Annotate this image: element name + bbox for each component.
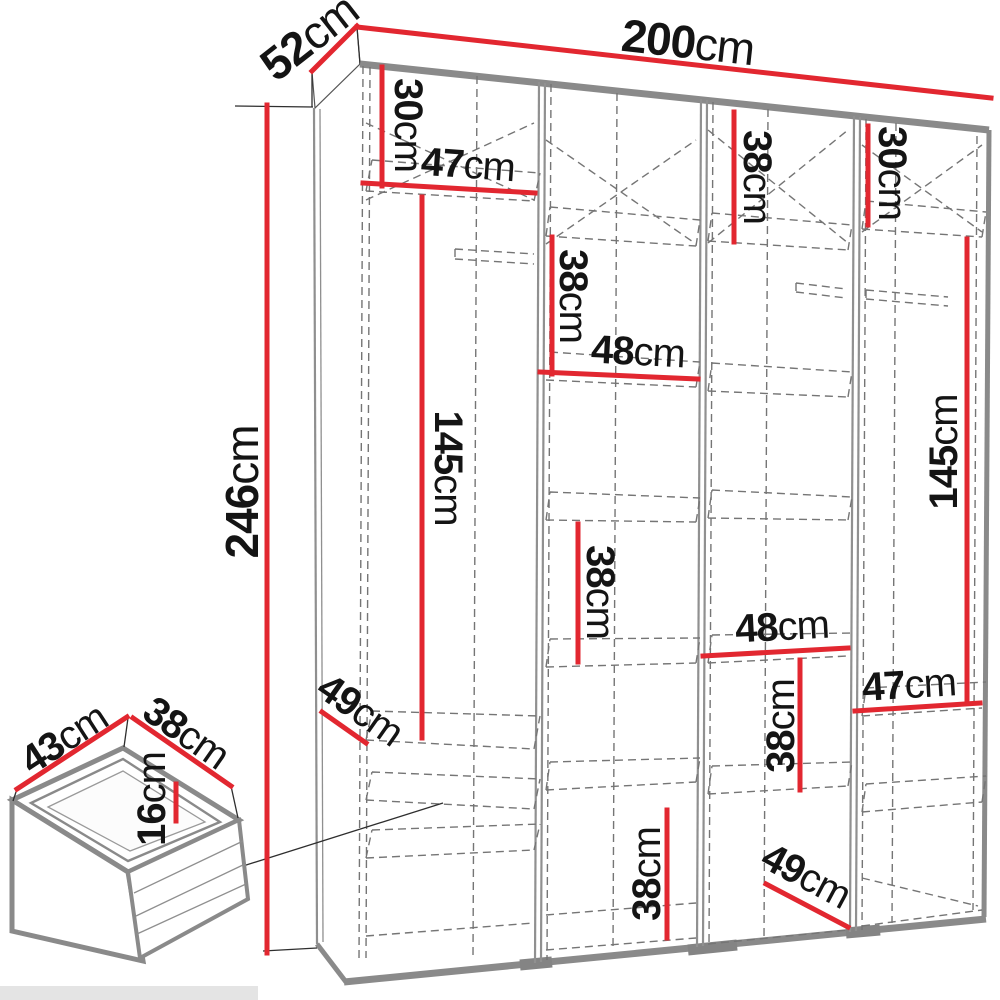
dim-label-s2-shelf: 48cm: [590, 328, 686, 377]
dim-label-s4-shelf: 47cm: [861, 660, 957, 710]
divider-1b: [541, 83, 545, 962]
right-edge: [984, 130, 989, 917]
dim-label-s4-top: 30cm: [870, 126, 914, 220]
dim-label-s4-hanging: 145cm: [922, 394, 966, 509]
divider-3b: [856, 117, 860, 931]
dim-label-s2-bottom: 38cm: [625, 827, 669, 921]
dim-label-height: 246cm: [216, 425, 268, 558]
dim-label-s3-shelf: 48cm: [734, 603, 830, 652]
drawer-shadow: [0, 986, 258, 1000]
wardrobe-dimension-diagram: 200cm 52cm 246cm 30cm 47cm 145cm 49cm 38…: [0, 0, 1000, 1000]
drawer-leader-line: [243, 803, 443, 866]
dim-label-s1-hanging: 145cm: [426, 410, 470, 525]
foot: [688, 945, 737, 950]
dim-label-s3-top: 38cm: [735, 130, 779, 224]
dim-label-drawer-height: 16cm: [130, 752, 174, 846]
dim-label-s2-upper: 38cm: [551, 249, 595, 343]
bottom-left-plinth: [317, 944, 346, 982]
left-outer-edge: [314, 108, 317, 944]
section1-shelves: [366, 123, 540, 936]
divider-2b: [703, 100, 707, 946]
height-witness-top: [235, 106, 313, 107]
left-outer-edge-inner: [320, 109, 323, 942]
dim-label-s2-middle: 38cm: [578, 545, 622, 639]
section3-shelves: [708, 130, 852, 944]
dim-label-s3-lower: 38cm: [759, 679, 803, 773]
divider-3: [850, 116, 854, 932]
dim-label-s1-shelf: 47cm: [420, 140, 517, 190]
drawer-witness-back: [124, 718, 128, 747]
height-witness-bottom: [263, 948, 317, 951]
dimension-labels: 200cm 52cm 246cm 30cm 47cm 145cm 49cm 38…: [13, 0, 966, 921]
